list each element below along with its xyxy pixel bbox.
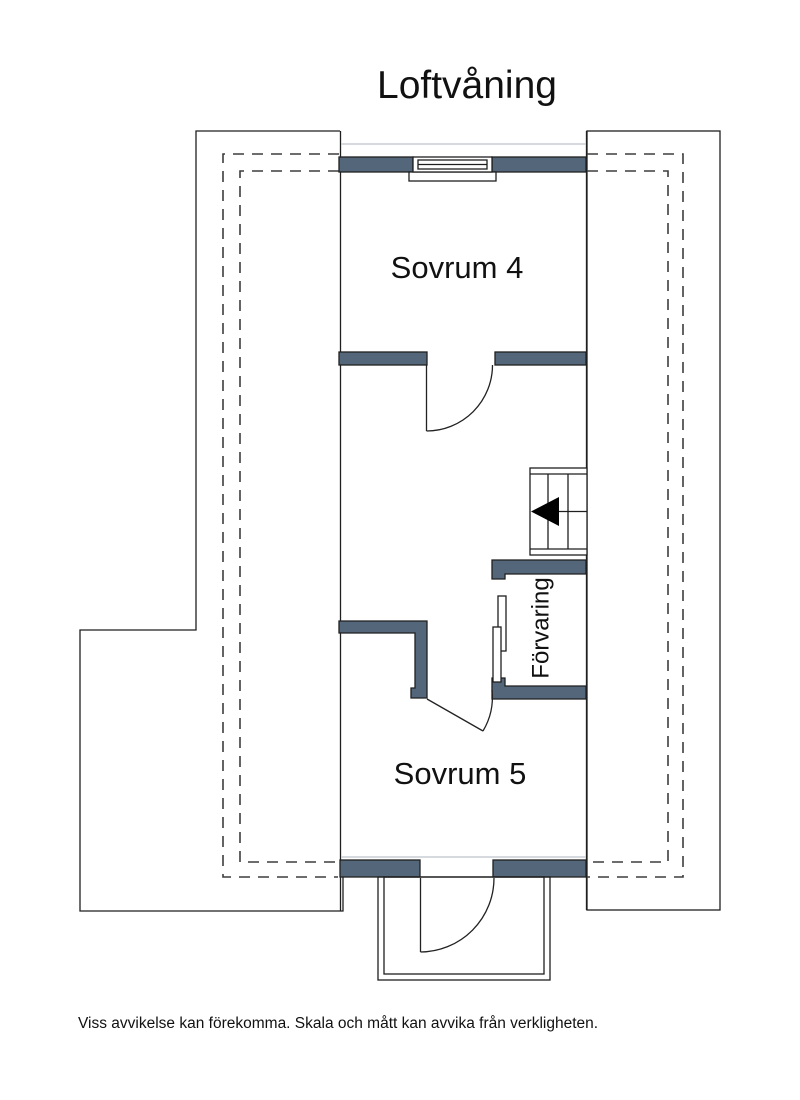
door-sovrum4-swing: [427, 365, 493, 431]
roof-outline-right: [587, 131, 720, 910]
window-sill: [409, 172, 496, 181]
wall-closet-top: [492, 560, 586, 579]
door-sovrum5-swing: [483, 690, 492, 731]
page-title: Loftvåning: [377, 64, 557, 107]
window: [409, 157, 496, 181]
sliding-door-panel-2: [493, 627, 501, 682]
wall-sovrum5-bottom-left: [340, 860, 420, 877]
roof-outline-left: [80, 131, 343, 911]
disclaimer-text: Viss avvikelse kan förekomma. Skala och …: [78, 1015, 598, 1032]
wall-sovrum4-bottom-left: [339, 352, 427, 365]
staircase: [530, 468, 587, 555]
wall-hall-l-shape: [339, 621, 427, 698]
wall-closet-bottom: [492, 678, 586, 699]
wall-sovrum5-bottom-right: [493, 860, 586, 877]
door-balcony: [421, 878, 495, 952]
door-sovrum4: [427, 365, 493, 431]
balcony-outer: [378, 877, 550, 980]
room-label-sovrum5: Sovrum 5: [394, 756, 527, 791]
sliding-door: [493, 596, 506, 682]
ceiling-height-dashed-right-inner: [587, 171, 668, 862]
balcony: [378, 877, 550, 980]
ceiling-height-dashed-left-inner: [240, 171, 339, 862]
wall-sovrum4-bottom-right: [495, 352, 586, 365]
balcony-inner: [384, 877, 544, 974]
wall-top-right-of-window: [492, 157, 586, 172]
door-sovrum5-leaf: [427, 699, 483, 731]
door-balcony-swing: [421, 878, 495, 952]
room-label-forvaring: Förvaring: [528, 577, 555, 678]
floor-plan: Loftvåning: [0, 0, 800, 1100]
wall-top-left-of-window: [339, 157, 413, 172]
room-label-sovrum4: Sovrum 4: [391, 250, 524, 285]
door-sovrum5: [427, 690, 492, 731]
